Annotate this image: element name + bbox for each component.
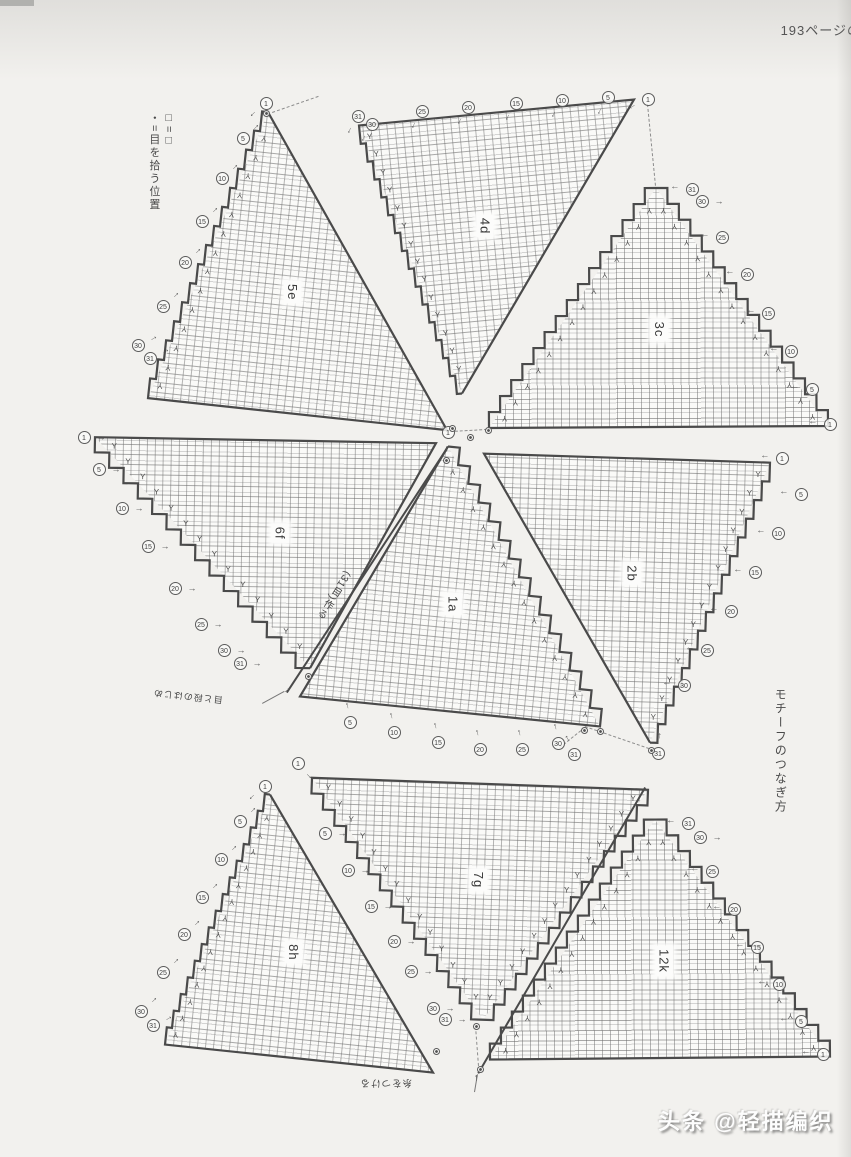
motif-chart-8h: YYYYYYYYYYYYYY8h	[165, 787, 460, 1073]
stitch-symbol: Y	[718, 285, 723, 293]
stitch-symbol: Y	[215, 931, 221, 940]
stitch-symbol: Y	[222, 914, 228, 923]
row-number-marker: 30	[678, 679, 691, 692]
stitch-symbol: Y	[257, 831, 263, 840]
motif-label-5e: 5e	[284, 281, 301, 303]
stitch-symbol: Y	[250, 847, 256, 856]
arrow-icon: →	[336, 828, 348, 838]
row-number-marker: 15	[142, 540, 155, 553]
arrow-icon: →	[95, 432, 107, 442]
stitch-symbol: Y	[646, 838, 651, 846]
row-number-marker: 5	[602, 91, 615, 104]
arrow-icon: →	[427, 718, 440, 732]
row-number-marker: 5	[795, 1015, 808, 1028]
arrow-icon: →	[711, 904, 723, 914]
row-number-marker: 31	[147, 1019, 160, 1032]
stitch-symbol: Y	[552, 653, 558, 661]
row-number-marker: 25	[716, 231, 729, 244]
stitch-symbol: Y	[798, 396, 803, 404]
motif-label-2b: 2b	[623, 562, 640, 584]
arrow-icon: →	[807, 419, 819, 429]
stitch-symbol: Y	[695, 885, 700, 893]
arrow-icon: →	[444, 1003, 456, 1013]
arrow-icon: →	[382, 901, 394, 911]
watermark: 头条 @轻描编织	[658, 1104, 834, 1136]
arrow-icon: →	[759, 453, 771, 463]
stitch-symbol: Y	[380, 168, 386, 176]
row-number-marker: 5	[344, 716, 357, 729]
stitch-symbol: Y	[747, 490, 753, 498]
stitch-symbol: Y	[415, 257, 421, 265]
row-number-marker: 10	[773, 978, 786, 991]
stitch-symbol: Y	[547, 982, 552, 990]
stitch-symbol: Y	[502, 414, 507, 422]
row-number-marker: 20	[741, 268, 754, 281]
motif-chart-3c: YYYYYYYYYYYYYYYYYYYYYYYYYYYY3c	[488, 187, 828, 428]
row-number-marker: 10	[785, 345, 798, 358]
stitch-symbol: Y	[651, 714, 657, 722]
stitch-symbol: Y	[536, 998, 541, 1006]
stitch-symbol: Y	[723, 546, 729, 554]
arrow-icon: →	[653, 730, 663, 742]
stitch-symbol: Y	[672, 222, 677, 230]
row-number-marker: 30	[132, 339, 145, 352]
stitch-symbol: Y	[580, 934, 585, 942]
stitch-symbol: Y	[422, 275, 428, 283]
arrow-icon: →	[724, 269, 736, 279]
row-number-marker: 20	[462, 101, 475, 114]
stitch-symbol: Y	[125, 458, 130, 466]
row-number-marker: 30	[696, 195, 709, 208]
legend-symbol-line: □=□	[163, 112, 175, 148]
stitch-symbol: Y	[187, 997, 193, 1006]
motif-joining-note: モチーフのつなぎ方	[772, 688, 788, 814]
pickup-dot-icon	[485, 427, 492, 434]
stitch-symbol: Y	[569, 318, 574, 326]
row-number-marker: 15	[196, 215, 209, 228]
stitch-symbol: Y	[602, 270, 607, 278]
stitch-symbol: Y	[625, 238, 630, 246]
arrow-icon: →	[212, 619, 224, 629]
pickup-dot-icon	[263, 110, 270, 117]
stitch-symbol: Y	[501, 559, 507, 567]
stitch-symbol: Y	[168, 504, 173, 512]
row-number-marker: 10	[215, 853, 228, 866]
stitch-symbol: Y	[753, 964, 758, 972]
stitch-symbol: Y	[194, 981, 200, 990]
row-number-marker: 15	[196, 891, 209, 904]
stitch-symbol: Y	[229, 897, 235, 906]
arrow-icon: →	[755, 528, 767, 538]
stitch-symbol: Y	[254, 596, 259, 604]
stitch-symbol: Y	[154, 489, 159, 497]
page-header-note: 193ページの続き	[781, 22, 851, 40]
stitch-symbol: Y	[718, 917, 723, 925]
row-number-marker: 1	[78, 431, 91, 444]
row-number-marker: 25	[157, 966, 170, 979]
row-number-marker: 15	[510, 97, 523, 110]
row-number-marker: 25	[195, 618, 208, 631]
stitch-symbol: Y	[580, 302, 585, 310]
row-number-marker: 5	[234, 815, 247, 828]
stitch-symbol: Y	[800, 1027, 805, 1035]
row-number-marker: 15	[751, 941, 764, 954]
join-guide-line	[272, 96, 318, 113]
stitch-symbol: Y	[525, 1014, 530, 1022]
motif-label-12k: 12k	[656, 947, 673, 977]
pickup-dot-icon	[443, 457, 450, 464]
row-number-marker: 10	[556, 94, 569, 107]
pickup-dot-icon	[581, 727, 588, 734]
stitch-symbol: Y	[660, 838, 665, 846]
scanned-pattern-page: 193ページの続き □=□ ・=目を拾う位置 モチーフのつなぎ方 头条 @轻描编…	[0, 0, 851, 1157]
arrow-icon: →	[689, 866, 701, 876]
arrow-icon: →	[789, 384, 801, 394]
row-number-marker: 30	[366, 118, 379, 131]
arrow-icon: →	[359, 865, 371, 875]
arrow-icon: →	[159, 541, 171, 551]
row-number-marker: 5	[93, 463, 106, 476]
arrow-icon: →	[684, 645, 696, 655]
row-number-marker: 31	[686, 183, 699, 196]
stitch-symbol: Y	[731, 527, 737, 535]
arrow-icon: →	[133, 503, 145, 513]
arrow-icon: →	[110, 464, 122, 474]
stitch-symbol: Y	[201, 964, 207, 973]
row-number-marker: 31	[144, 352, 157, 365]
stitch-symbol: Y	[706, 269, 711, 277]
row-number-marker: 1	[817, 1048, 830, 1061]
arrow-icon: →	[745, 308, 757, 318]
arrow-icon: →	[186, 583, 198, 593]
row-number-marker: 15	[432, 736, 445, 749]
row-number-marker: 10	[772, 527, 785, 540]
arrow-icon: →	[669, 184, 681, 194]
stitch-symbol: Y	[245, 171, 251, 180]
stitch-symbol: Y	[470, 503, 476, 511]
stitch-symbol: Y	[449, 347, 455, 355]
stitch-symbol: Y	[547, 350, 552, 358]
chart-outline	[165, 787, 460, 1073]
row-number-marker: 31	[439, 1013, 452, 1026]
stitch-symbol: Y	[237, 190, 243, 199]
stitch-symbol: Y	[659, 695, 665, 703]
attach-yarn-note: 糸をつける	[359, 1075, 412, 1088]
stitch-symbol: Y	[707, 583, 713, 591]
row-number-marker: 20	[178, 928, 191, 941]
motif-label-7g: 7g	[470, 869, 487, 891]
row-number-marker: 10	[216, 172, 229, 185]
stitch-symbol: Y	[558, 334, 563, 342]
row-number-marker: 1	[259, 780, 272, 793]
row-number-marker: 1	[824, 418, 837, 431]
row-number-marker: 25	[706, 865, 719, 878]
row-number-marker: 5	[319, 827, 332, 840]
stitch-symbol: Y	[541, 634, 547, 642]
stitch-symbol: Y	[695, 253, 700, 261]
pickup-dot-icon	[467, 434, 474, 441]
stitch-symbol: Y	[660, 206, 665, 214]
stitch-symbol: Y	[569, 950, 574, 958]
stitch-symbol: Y	[240, 581, 245, 589]
stitch-symbol: Y	[647, 206, 652, 214]
motif-label-6f: 6f	[271, 523, 288, 542]
stitch-symbol: Y	[562, 671, 568, 679]
arrow-icon: →	[734, 942, 746, 952]
row-number-marker: 25	[157, 300, 170, 313]
stitch-symbol: Y	[408, 239, 414, 247]
row-number-marker: 25	[701, 644, 714, 657]
arrow-icon: →	[471, 1072, 482, 1085]
row-number-marker: 5	[806, 383, 819, 396]
stitch-symbol: Y	[635, 854, 640, 862]
stitch-symbol: Y	[491, 541, 497, 549]
stitch-symbol: Y	[511, 578, 517, 586]
row-number-marker: 30	[135, 1005, 148, 1018]
arrow-icon: →	[456, 1014, 468, 1024]
stitch-symbol: Y	[456, 365, 462, 373]
motif-label-8h: 8h	[285, 941, 302, 963]
stitch-symbol: Y	[473, 994, 479, 1002]
row-number-marker: 25	[405, 965, 418, 978]
arrow-icon: →	[800, 1049, 812, 1059]
row-number-marker: 31	[234, 657, 247, 670]
row-number-marker: 30	[218, 644, 231, 657]
stitch-symbol: Y	[521, 597, 527, 605]
start-note: 目と段のはじめ	[152, 687, 223, 706]
stitch-symbol: Y	[211, 550, 216, 558]
stitch-symbol: Y	[729, 301, 734, 309]
row-number-marker: 20	[388, 935, 401, 948]
stitch-symbol: Y	[173, 343, 179, 352]
stitch-symbol: Y	[111, 442, 116, 450]
stitch-symbol: Y	[401, 222, 407, 230]
row-number-marker: 20	[474, 743, 487, 756]
stitch-symbol: Y	[243, 864, 249, 873]
stitch-symbol: Y	[715, 565, 721, 573]
row-number-marker: 10	[116, 502, 129, 515]
stitch-symbol: Y	[189, 305, 195, 314]
stitch-symbol: Y	[613, 254, 618, 262]
row-number-marker: 30	[427, 1002, 440, 1015]
stitch-symbol: Y	[775, 365, 780, 373]
stitch-symbol: Y	[811, 1043, 816, 1051]
stitch-symbol: Y	[602, 902, 607, 910]
stitch-symbol: Y	[591, 918, 596, 926]
stitch-symbol: Y	[442, 329, 448, 337]
stitch-symbol: Y	[730, 933, 735, 941]
stitch-symbol: Y	[536, 366, 541, 374]
arrow-icon: →	[732, 567, 744, 577]
stitch-symbol: Y	[226, 566, 231, 574]
stitch-symbol: Y	[683, 869, 688, 877]
arrow-icon: →	[778, 489, 790, 499]
row-number-marker: 5	[795, 488, 808, 501]
stitch-symbol: Y	[619, 810, 625, 818]
arrow-icon: →	[699, 232, 711, 242]
stitch-symbol: Y	[451, 962, 457, 970]
legend-pickup-line: ・=目を拾う位置	[148, 112, 160, 211]
stitch-symbol: Y	[675, 658, 681, 666]
arrow-icon: →	[235, 645, 247, 655]
row-number-marker: 1	[260, 97, 273, 110]
arrow-icon: →	[661, 680, 673, 690]
row-number-marker: 15	[762, 307, 775, 320]
stitch-symbol: Y	[671, 854, 676, 862]
pickup-dot-icon	[305, 673, 312, 680]
stitch-symbol: Y	[776, 996, 781, 1004]
row-number-marker: 1	[776, 452, 789, 465]
stitch-symbol: Y	[524, 382, 529, 390]
arrow-icon: →	[145, 991, 161, 1007]
row-number-marker: 20	[179, 256, 192, 269]
row-number-marker: 20	[725, 605, 738, 618]
stitch-symbol: Y	[197, 535, 202, 543]
row-number-marker: 20	[728, 903, 741, 916]
stitch-symbol: Y	[752, 333, 757, 341]
stitch-symbol: Y	[699, 602, 705, 610]
row-number-marker: 15	[749, 566, 762, 579]
stitch-symbol: Y	[181, 324, 187, 333]
stitch-symbol: Y	[613, 886, 618, 894]
stitch-symbol: Y	[197, 286, 203, 295]
arrow-icon: →	[665, 818, 677, 828]
motif-label-3c: 3c	[651, 319, 668, 341]
row-number-marker: 1	[642, 93, 655, 106]
arrow-icon: →	[768, 346, 780, 356]
stitch-symbol: Y	[297, 643, 302, 651]
pickup-dot-icon	[597, 728, 604, 735]
arrow-icon: →	[251, 658, 263, 668]
stitch-symbol: Y	[183, 519, 188, 527]
row-number-marker: 10	[342, 864, 355, 877]
arrow-icon: →	[778, 1016, 790, 1026]
stitch-symbol: Y	[462, 978, 468, 986]
pickup-dot-icon	[433, 1048, 440, 1055]
row-number-marker: 31	[568, 748, 581, 761]
stitch-symbol: Y	[513, 398, 518, 406]
pickup-dot-icon	[473, 1023, 480, 1030]
arrow-icon: →	[711, 832, 723, 842]
chart-outline	[488, 187, 828, 428]
row-number-marker: 25	[416, 105, 429, 118]
stitch-symbol: Y	[755, 471, 761, 479]
pickup-dot-icon	[648, 747, 655, 754]
stitch-symbol: Y	[591, 286, 596, 294]
stitch-symbol: Y	[481, 522, 487, 530]
stitch-symbol: Y	[531, 615, 537, 623]
arrow-icon: →	[708, 606, 720, 616]
join-guide-line	[475, 1026, 479, 1066]
stitch-symbol: Y	[165, 362, 171, 371]
join-guide-line	[647, 104, 656, 186]
row-number-marker: 31	[352, 110, 365, 123]
stitch-symbol: Y	[261, 133, 267, 142]
stitch-symbol: Y	[157, 381, 163, 390]
stitch-symbol: Y	[624, 870, 629, 878]
stitch-symbol: Y	[683, 238, 688, 246]
pickup-dot-icon	[449, 425, 456, 432]
stitch-symbol: Y	[691, 621, 697, 629]
stitch-symbol: Y	[582, 709, 588, 717]
stitch-symbol: Y	[503, 1046, 508, 1054]
stitch-symbol: Y	[325, 784, 331, 792]
arrow-icon: →	[383, 708, 396, 722]
stitch-symbol: Y	[636, 222, 641, 230]
row-number-marker: 31	[682, 817, 695, 830]
scan-smudge	[0, 0, 34, 6]
motif-label-1a: 1a	[445, 593, 462, 615]
row-number-marker: 15	[365, 900, 378, 913]
row-number-marker: 20	[169, 582, 182, 595]
join-guide-line	[450, 429, 487, 432]
arrow-icon: →	[405, 936, 417, 946]
arrow-icon: →	[756, 979, 768, 989]
stitch-symbol: Y	[460, 485, 466, 493]
row-number-marker: 1	[292, 757, 305, 770]
arrow-icon: →	[443, 443, 453, 455]
row-number-marker: 10	[388, 726, 401, 739]
row-number-marker: 5	[237, 132, 250, 145]
stitch-symbol: Y	[394, 204, 400, 212]
stitch-symbol: Y	[373, 150, 379, 158]
stitch-symbol: Y	[741, 317, 746, 325]
stitch-symbol: Y	[558, 966, 563, 974]
stitch-symbol: Y	[572, 690, 578, 698]
stitch-symbol: Y	[253, 152, 259, 161]
row-number-marker: 25	[516, 743, 529, 756]
stitch-symbol: Y	[269, 612, 274, 620]
stitch-symbol: Y	[140, 473, 145, 481]
arrow-icon: →	[422, 966, 434, 976]
row-number-marker: 30	[694, 831, 707, 844]
stitch-symbol: Y	[739, 509, 745, 517]
stitch-symbol: Y	[514, 1030, 519, 1038]
stitch-symbol: Y	[283, 627, 288, 635]
arrow-icon: →	[713, 196, 725, 206]
